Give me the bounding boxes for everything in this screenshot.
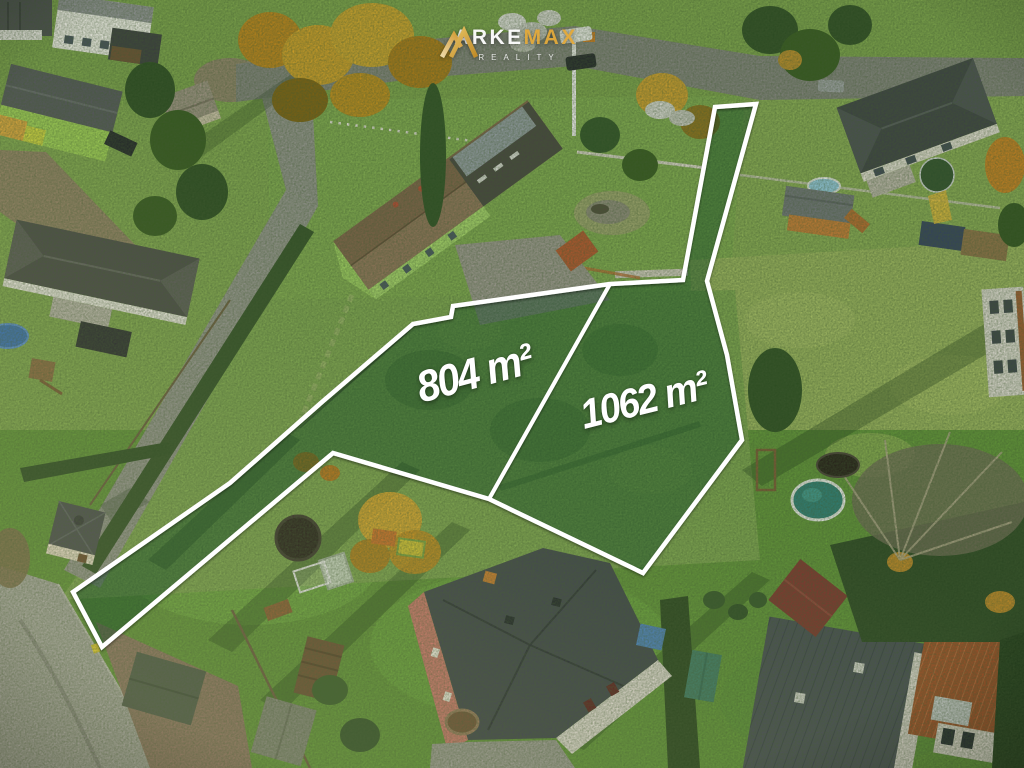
- aerial-photo: 804 m² 1062 m² ARKEMAX REALITY: [0, 0, 1024, 768]
- arkemax-mountain-icon: [438, 26, 482, 60]
- brand-subtitle: REALITY: [471, 53, 560, 62]
- arkemax-watermark: ARKEMAX REALITY: [438, 26, 594, 62]
- brand-secondary-text: MAX: [524, 26, 578, 49]
